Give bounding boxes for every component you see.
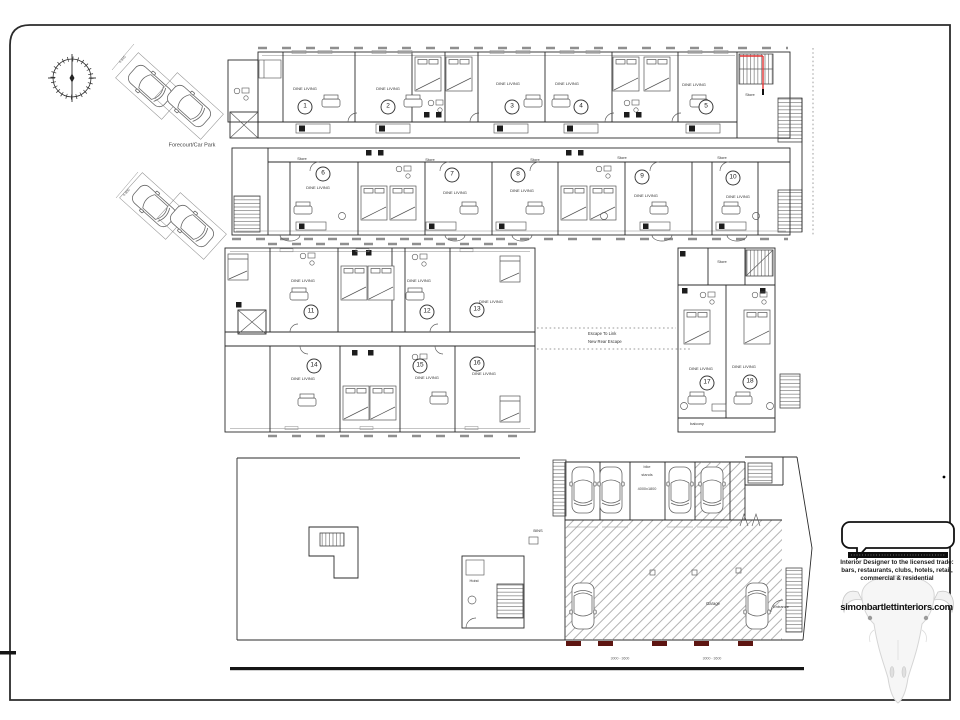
unit-15: 15 [413,359,428,374]
unit-17: 17 [700,376,715,391]
logo-website: simonbartlettinteriors.com [833,602,960,613]
logo-tagline-1: Interior Designer to the licensed trade: [836,560,958,566]
room-label: DINE LIVING [376,87,400,91]
room-label: DINE LIVING [555,82,579,86]
room-label: DINE LIVING [479,300,503,304]
store-label: Store [297,157,307,161]
unit-12: 12 [420,305,435,320]
room-label: DINE LIVING [291,279,315,283]
room-label: DINE LIVING [472,372,496,376]
bins-label: BINS [533,529,542,533]
logo-tagline-3: commercial & residential [836,576,958,582]
bike-stands-label: stands [641,474,652,478]
escape-note-line2: New Rear Escape [588,340,622,344]
store-label: Store [717,260,727,264]
room-label: DINE LIVING [415,376,439,380]
store-label: Store [745,93,755,97]
room-label: DINE LIVING [510,189,534,193]
bike-stands-label: bike [644,466,651,470]
room-label: DINE LIVING [496,82,520,86]
unit-1: 1 [298,100,313,115]
unit-2: 2 [381,100,396,115]
store-label: Store [717,156,727,160]
unit-11: 11 [304,305,319,320]
floor-plan-sheet: Forecourt/Car Park 4.845 4.800 1 2 3 4 5… [0,0,960,720]
unit-7: 7 [445,168,460,183]
garage-label: Garage [706,602,720,606]
unit-6: 6 [316,167,331,182]
room-label: DINE LIVING [732,365,756,369]
unit-4: 4 [574,100,589,115]
balcony-label: balcony [690,422,704,426]
bike-stands-dims: 4000x1800 [638,488,657,492]
unit-5: 5 [699,100,714,115]
unit-16: 16 [470,357,485,372]
room-label: DINE LIVING [443,191,467,195]
bay-dimension: 4.845 [119,56,127,65]
room-label: DINE LIVING [682,83,706,87]
room-label: DINE LIVING [689,367,713,371]
room-label: DINE LIVING [306,186,330,190]
hoist-label: Hoist [469,579,478,583]
escape-note-line1: Escape To Link [588,332,616,336]
unit-3: 3 [505,100,520,115]
unit-8: 8 [511,168,526,183]
room-label: DINE LIVING [407,279,431,283]
label-layer: Forecourt/Car Park 4.845 4.800 1 2 3 4 5… [0,0,960,720]
door-dimension: 3000 - 3600 [611,657,630,661]
unit-14: 14 [307,359,322,374]
unit-10: 10 [726,171,741,186]
door-dimension: 3000 - 3600 [703,657,722,661]
unit-18: 18 [743,375,758,390]
forecourt-label: Forecourt/Car Park [169,143,216,149]
room-label: DINE LIVING [293,87,317,91]
entrance-label: Entrance [773,605,789,609]
unit-9: 9 [635,170,650,185]
logo-tagline-2: bars, restaurants, clubs, hotels, retail… [836,568,958,574]
store-label: Store [425,158,435,162]
store-label: Store [617,156,627,160]
bay-dimension: 4.800 [123,189,131,198]
room-label: DINE LIVING [291,377,315,381]
unit-13: 13 [470,303,485,318]
room-label: DINE LIVING [726,195,750,199]
store-label: Store [530,158,540,162]
room-label: DINE LIVING [634,194,658,198]
